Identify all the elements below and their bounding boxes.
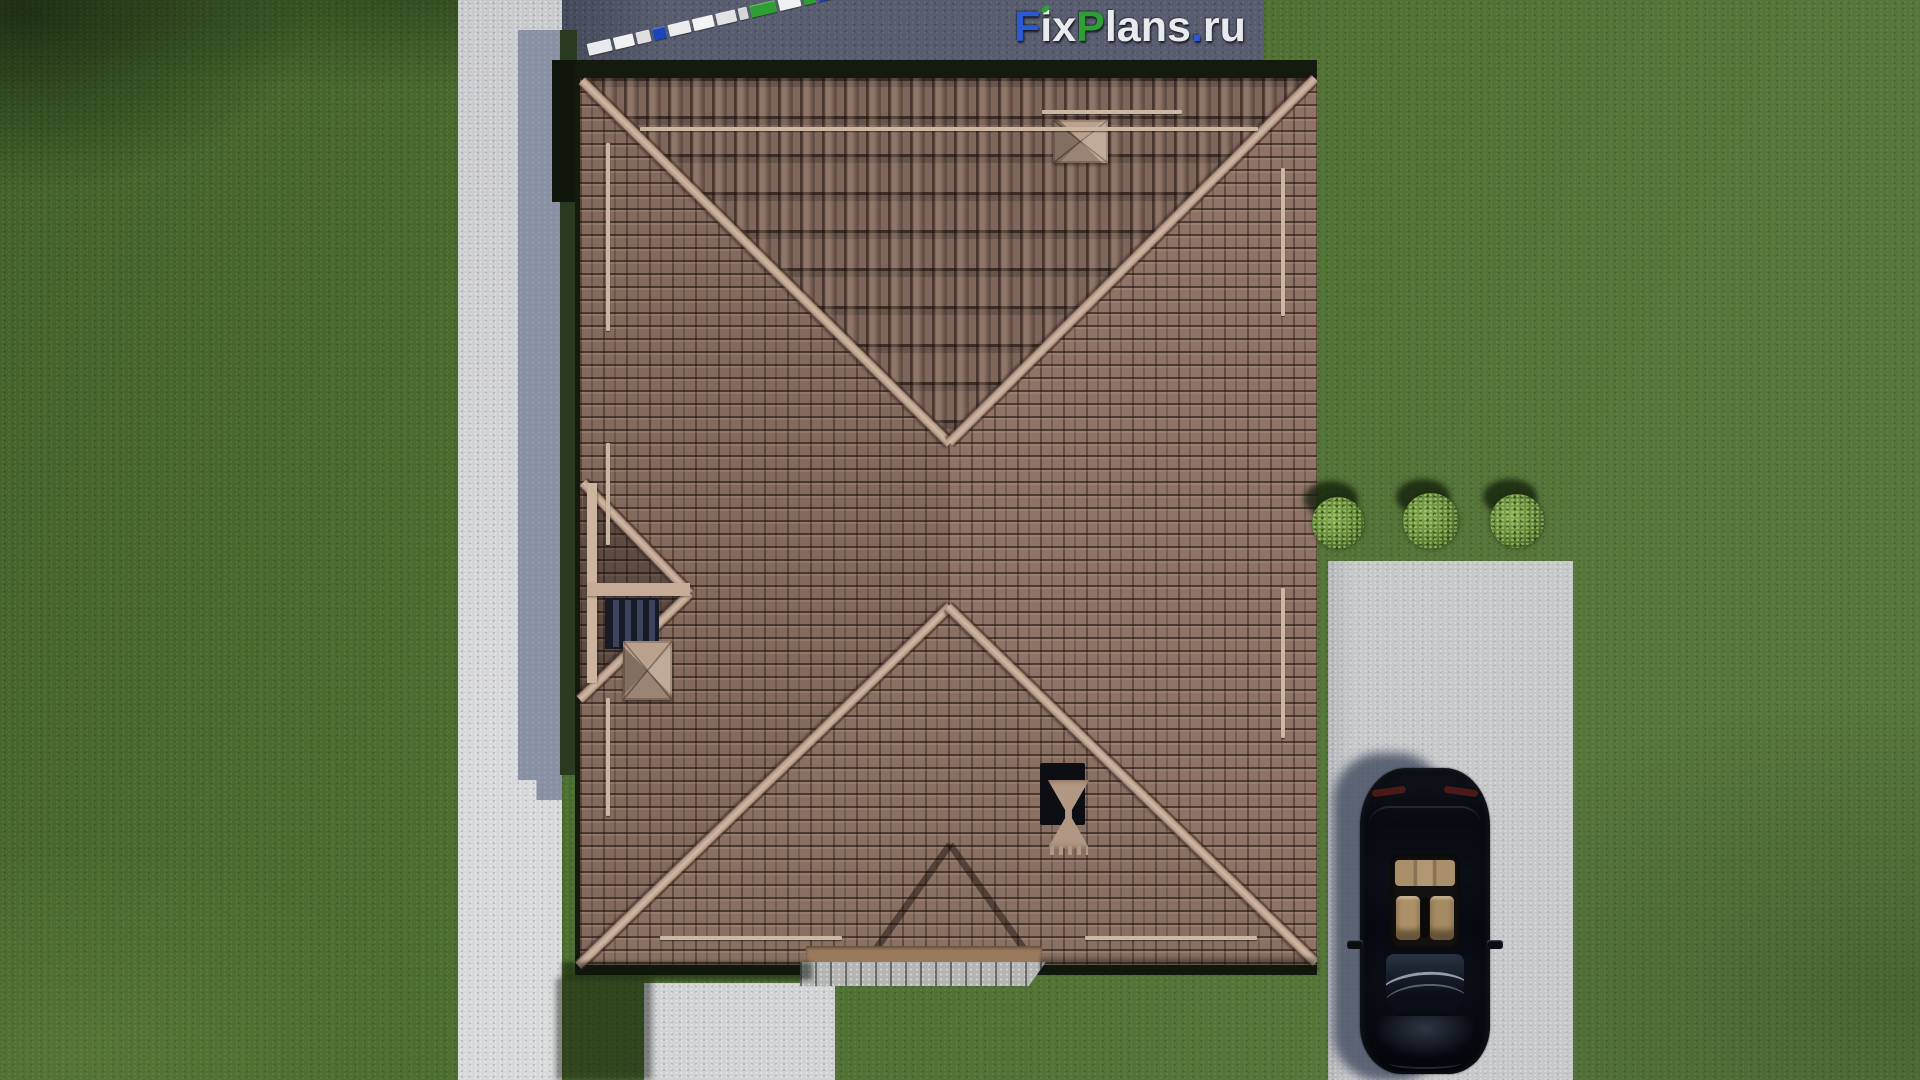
watermark-letter: l <box>1105 4 1117 51</box>
watermark-letter: n <box>1141 4 1167 51</box>
eave-shadow-south-right <box>1040 958 1318 972</box>
roof-vent-legs <box>1050 846 1088 855</box>
leaf-icon <box>1040 5 1051 14</box>
snow-guard-west-1 <box>606 143 610 331</box>
snow-guard-south-right <box>1085 936 1257 940</box>
bush <box>1403 493 1459 549</box>
car-windshield <box>1386 954 1464 1012</box>
watermark-letter: r <box>1203 4 1220 51</box>
car-rear-seat <box>1395 860 1455 886</box>
snow-guard-north-upper <box>1042 110 1182 114</box>
watermark-logo: FixPlans.ru <box>1014 4 1246 51</box>
chimney-pyramid-cap-west <box>623 641 672 700</box>
roof-tile-field <box>580 78 1317 965</box>
car-front-seat-left <box>1396 896 1420 940</box>
car-mirror-left <box>1347 940 1363 949</box>
grass-shadow-bottom-left <box>556 978 652 1080</box>
aerial-site-render: FixPlans.ru <box>0 0 1920 1080</box>
car-cabin <box>1390 854 1460 950</box>
porch-stone-edge <box>800 962 1046 986</box>
watermark-letter: s <box>1167 4 1191 51</box>
watermark-letter: P <box>1076 4 1105 51</box>
snow-guard-east-1 <box>1281 168 1285 316</box>
scale-bar-segment <box>738 7 750 21</box>
bush <box>1490 494 1544 548</box>
car-mirror-right <box>1487 940 1503 949</box>
car-tail-light-right <box>1444 786 1479 798</box>
rear-walkway <box>644 983 835 1080</box>
car-tail-light-left <box>1372 786 1407 798</box>
side-projection-wall-horizontal <box>587 583 690 596</box>
watermark-letter: x <box>1052 4 1076 51</box>
bush <box>1312 497 1364 549</box>
car-front-seat-right <box>1430 896 1454 940</box>
snow-guard-west-2 <box>606 443 610 545</box>
snow-guard-east-2 <box>1281 588 1285 738</box>
watermark-letter: i <box>1040 4 1052 51</box>
snow-guard-north <box>640 127 1258 131</box>
car-center-console <box>1421 898 1429 938</box>
watermark-letter: F <box>1014 4 1040 51</box>
snow-guard-south-left <box>660 936 842 940</box>
car-trunk-line <box>1368 806 1482 838</box>
house-roof <box>575 60 1317 975</box>
watermark-letter: . <box>1191 4 1203 51</box>
watermark-letter: a <box>1117 4 1141 51</box>
car <box>1360 768 1490 1074</box>
watermark-letter: u <box>1220 4 1246 51</box>
snow-guard-west-3 <box>606 698 610 816</box>
car-nose-line <box>1388 1057 1462 1069</box>
car-hood-shine <box>1374 1016 1476 1058</box>
